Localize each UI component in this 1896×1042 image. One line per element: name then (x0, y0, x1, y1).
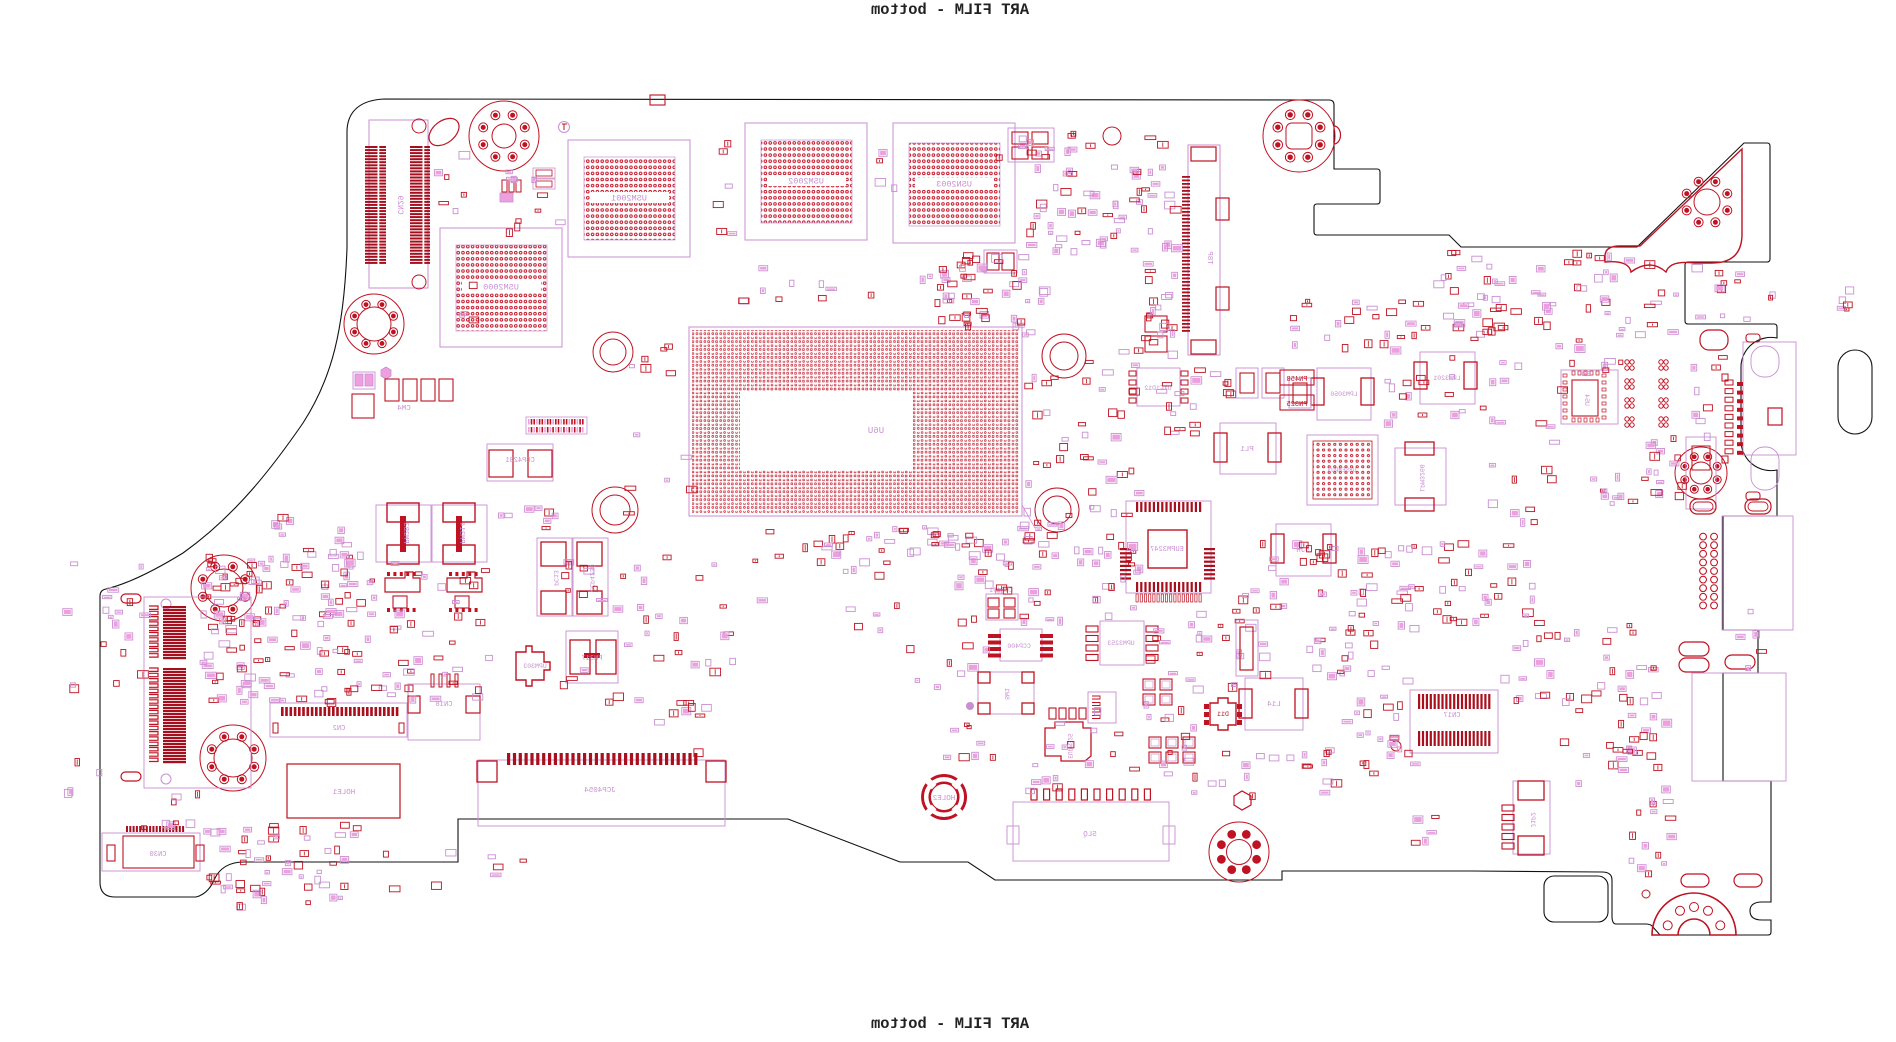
svg-text:PN458: PN458 (1286, 376, 1307, 384)
svg-text:UPM303: UPM303 (523, 663, 547, 670)
svg-text:UPM3253: UPM3253 (1107, 640, 1134, 647)
svg-text:PM314: PM314 (457, 522, 465, 543)
svg-text:LPM3201: LPM3201 (1433, 375, 1460, 382)
svg-text:CM4: CM4 (397, 405, 411, 413)
svg-text:SLQ: SLQ (1083, 831, 1097, 839)
svg-text:U6U: U6U (868, 426, 884, 436)
svg-text:T8P: T8P (1205, 251, 1213, 265)
svg-text:HOLE2: HOLE2 (933, 795, 956, 803)
svg-text:LPM3260: LPM3260 (1418, 464, 1425, 491)
svg-text:PL1: PL1 (1240, 446, 1254, 454)
svg-text:ART FILM - bottom: ART FILM - bottom (871, 1015, 1029, 1033)
svg-text:USM2000: USM2000 (483, 283, 519, 293)
svg-text:SW1: SW1 (1003, 688, 1010, 700)
svg-text:ART FILM - bottom: ART FILM - bottom (871, 1, 1029, 19)
svg-text:U54: U54 (1583, 394, 1590, 406)
svg-text:USM2002: USM2002 (788, 177, 824, 187)
svg-text:HOLE1: HOLE1 (332, 789, 355, 797)
svg-text:JCP4054: JCP4054 (584, 787, 616, 795)
svg-text:PN317: PN317 (581, 655, 602, 663)
svg-text:CCP4231: CCP4231 (505, 457, 534, 465)
svg-text:PM2B3: PM2B3 (401, 522, 409, 543)
svg-text:U8SEMPU3: U8SEMPU3 (1327, 467, 1356, 474)
svg-text:L14: L14 (1267, 701, 1281, 709)
svg-text:USN2003: USN2003 (936, 180, 972, 190)
svg-text:PC13: PC13 (552, 570, 559, 586)
svg-text:J1P2: J1P2 (1529, 812, 1536, 828)
svg-text:PN325: PN325 (1286, 401, 1307, 409)
svg-text:CN17: CN17 (1444, 712, 1461, 720)
svg-text:EUPM3247: EUPM3247 (1150, 546, 1184, 554)
svg-text:CN30: CN30 (150, 851, 167, 859)
svg-text:CN29: CN29 (395, 195, 404, 214)
svg-text:USM2001: USM2001 (611, 194, 647, 204)
svg-text:CCP400: CCP400 (1007, 643, 1031, 650)
svg-text:LPM3050: LPM3050 (1330, 391, 1357, 398)
svg-text:CN2: CN2 (333, 725, 346, 733)
svg-text:CN18: CN18 (436, 701, 453, 709)
svg-text:D11: D11 (1217, 711, 1229, 718)
